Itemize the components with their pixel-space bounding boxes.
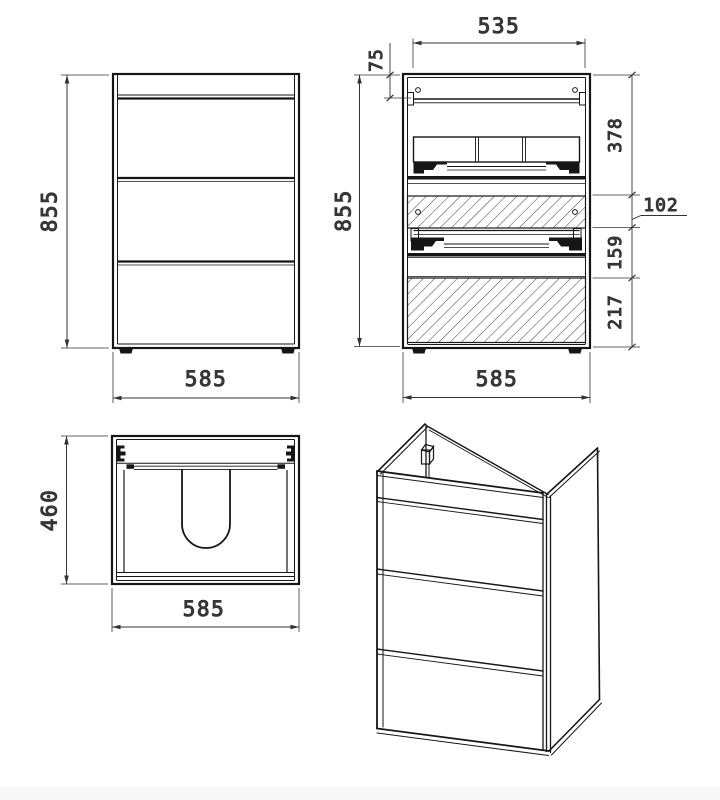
dim-section-seg1: 378	[605, 117, 626, 153]
section-view	[403, 74, 590, 354]
slide-hardware-left	[414, 162, 448, 174]
screw-hole	[416, 210, 421, 215]
dim-section-top-width: 535	[478, 14, 520, 38]
wall-bracket-right	[286, 446, 295, 462]
foot-left	[412, 348, 426, 354]
front-view	[113, 74, 299, 354]
dim-top-depth: 460	[37, 489, 61, 531]
top-view	[112, 436, 299, 584]
screw-hole	[573, 210, 578, 215]
hatched-panel-middle	[408, 196, 586, 228]
foot-right	[281, 348, 295, 354]
footer-strip	[0, 787, 720, 800]
front-view-dimensions: 855 585	[37, 75, 299, 403]
dim-section-seg4: 217	[605, 294, 626, 330]
slide-hardware-right	[546, 162, 580, 174]
rail-hook-left	[408, 93, 414, 106]
dim-front-width: 585	[185, 367, 227, 391]
drawing-sheet: 855 585	[0, 0, 720, 800]
slide-hardware-left	[411, 238, 444, 251]
isometric-view	[377, 424, 602, 756]
dim-front-height: 855	[37, 190, 61, 232]
foot-right	[568, 348, 582, 354]
screw-hole	[416, 88, 421, 93]
dim-section-width: 585	[476, 367, 518, 391]
slide-hardware-right	[549, 238, 582, 251]
dim-section-seg3: 159	[605, 235, 626, 271]
dim-section-seg2: 102	[643, 195, 679, 216]
dim-section-top-inset: 75	[366, 48, 387, 72]
dim-section-height: 855	[331, 189, 355, 231]
screw-hole	[573, 88, 578, 93]
hatched-panel-bottom	[408, 278, 586, 343]
foot-left	[119, 348, 133, 354]
wall-bracket-left	[117, 446, 126, 462]
sink-drain-cutout	[182, 469, 230, 548]
hanging-bracket	[422, 445, 434, 478]
top-view-dimensions: 460 585	[37, 436, 299, 632]
dim-top-width: 585	[183, 597, 225, 621]
rail-hook-right	[580, 93, 586, 106]
technical-drawing-canvas: 855 585	[0, 0, 720, 800]
